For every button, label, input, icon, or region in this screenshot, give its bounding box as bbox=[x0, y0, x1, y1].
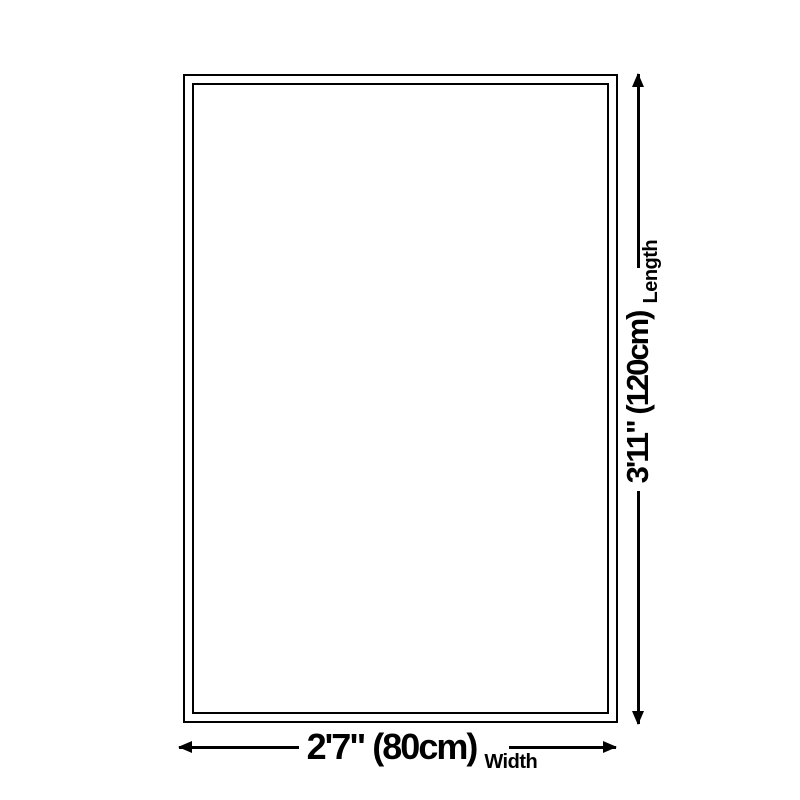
width-dimension-label: 2'7" (80cm)Width bbox=[307, 727, 502, 767]
length-dimension-line-lower bbox=[637, 491, 640, 724]
arrow-up-icon bbox=[632, 73, 644, 87]
width-label: Width bbox=[484, 751, 537, 773]
width-dimension-line-right bbox=[509, 746, 616, 749]
length-dimension: 3'11" (120cm)Length bbox=[614, 74, 662, 724]
arrow-right-icon bbox=[603, 741, 617, 753]
length-label: Length bbox=[640, 240, 662, 304]
arrow-down-icon bbox=[632, 711, 644, 725]
width-dimension: 2'7" (80cm)Width bbox=[179, 723, 616, 771]
product-outline-inner bbox=[192, 83, 609, 714]
product-dimension-diagram: 3'11" (120cm)Length 2'7" (80cm)Width bbox=[0, 0, 800, 800]
length-dimension-line-upper bbox=[637, 74, 640, 268]
length-dimension-label: 3'11" (120cm)Length bbox=[621, 276, 655, 484]
arrow-left-icon bbox=[178, 741, 192, 753]
width-dimension-line-left bbox=[179, 746, 299, 749]
width-value: 2'7" (80cm) bbox=[307, 726, 477, 767]
length-value: 3'11" (120cm) bbox=[620, 312, 655, 484]
product-outline-outer bbox=[183, 74, 618, 723]
